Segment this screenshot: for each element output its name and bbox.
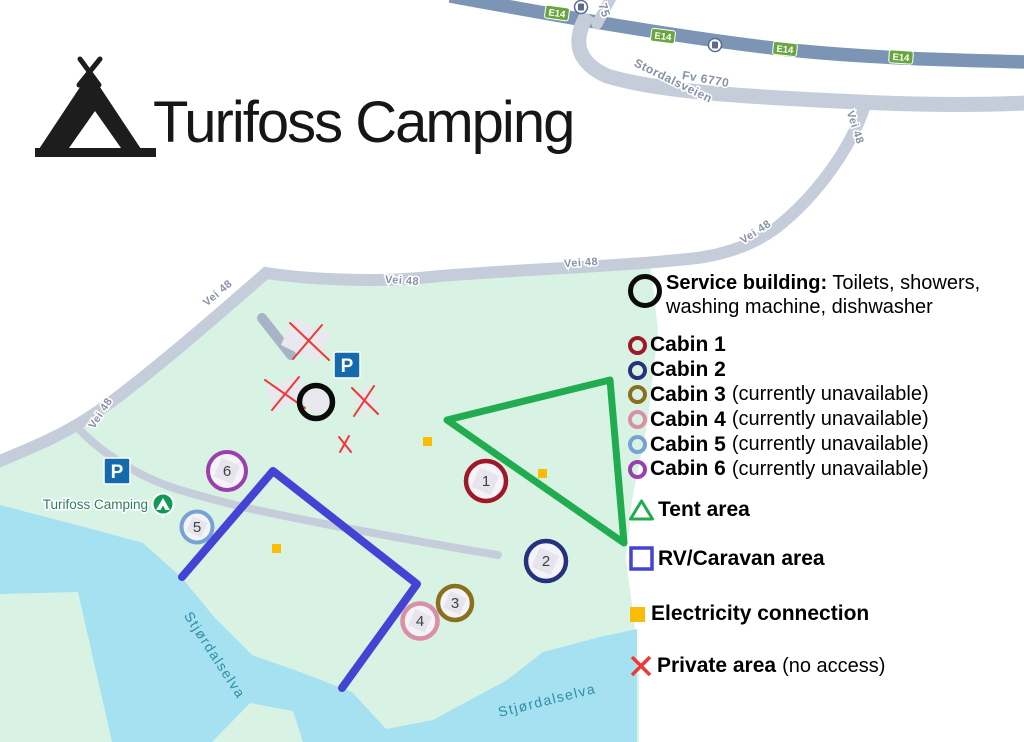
cabin-number: 6 xyxy=(223,463,231,480)
rv-area-icon xyxy=(628,545,655,572)
cabin-ring-icon xyxy=(628,435,647,454)
legend-cabin-4: Cabin 4 (currently unavailable) xyxy=(628,407,929,432)
campsite-poi-label: Turifoss Camping xyxy=(43,497,148,512)
cabin-ring-icon xyxy=(628,410,647,429)
road-e14 xyxy=(450,0,1024,62)
cabin-label: Cabin 6 xyxy=(650,457,726,481)
private-x-icon xyxy=(628,653,654,679)
electricity-icon xyxy=(272,544,281,553)
campground-map-page: P P Turifoss Camping 1 2 xyxy=(0,0,1024,742)
route-badge-label: E14 xyxy=(776,44,795,57)
cabin-ring-icon xyxy=(628,460,647,479)
cabin-label: Cabin 4 xyxy=(650,408,726,432)
tent-area-icon xyxy=(628,498,655,522)
cabin-number: 3 xyxy=(451,595,459,612)
cabin-ring-icon xyxy=(628,361,647,380)
cabin-ring-icon xyxy=(628,336,647,355)
cabin-marker-5: 5 xyxy=(182,512,213,543)
cabin-note: (currently unavailable) xyxy=(732,383,929,406)
electricity-icon xyxy=(423,437,432,446)
service-building-text: Service building: Toilets, showers, wash… xyxy=(666,271,980,319)
map-legend: Service building: Toilets, showers, wash… xyxy=(620,265,1024,742)
cabin-label: Cabin 1 xyxy=(650,333,726,357)
legend-private-area: Private area (no access) xyxy=(628,653,885,679)
electricity-label: Electricity connection xyxy=(651,602,869,626)
cabin-number: 1 xyxy=(482,473,490,490)
bus-stop-icon xyxy=(709,39,722,52)
service-building-icon xyxy=(628,274,662,308)
legend-cabin-5: Cabin 5 (currently unavailable) xyxy=(628,432,929,457)
legend-cabin-1: Cabin 1 xyxy=(628,333,929,358)
parking-sign: P xyxy=(104,458,130,484)
cabin-note: (currently unavailable) xyxy=(732,408,929,431)
legend-electricity: Electricity connection xyxy=(628,602,869,626)
route-badge-label: E14 xyxy=(892,52,910,64)
legend-rv-area: RV/Caravan area xyxy=(628,545,825,572)
service-building-desc1: Toilets, showers, xyxy=(832,272,980,294)
service-building-desc2: washing machine, dishwasher xyxy=(666,296,933,318)
cabin-marker-2: 2 xyxy=(526,541,566,581)
electricity-icon xyxy=(538,469,547,478)
page-title: Turifoss Camping xyxy=(153,92,573,154)
cabin-label: Cabin 5 xyxy=(650,433,726,457)
cabin-number: 5 xyxy=(193,519,201,536)
legend-cabin-2: Cabin 2 xyxy=(628,358,929,383)
legend-tent-area: Tent area xyxy=(628,498,750,522)
cabin-marker-4: 4 xyxy=(403,604,438,639)
parking-letter: P xyxy=(341,356,354,377)
tent-logo-icon xyxy=(35,52,161,164)
bus-stop-icon xyxy=(575,1,588,14)
service-building-title: Service building: xyxy=(666,272,827,294)
cabin-marker-6: 6 xyxy=(208,452,246,490)
tent-area-label: Tent area xyxy=(658,498,750,522)
parking-letter: P xyxy=(111,462,124,483)
legend-service-building: Service building: Toilets, showers, wash… xyxy=(628,271,980,319)
road-label-vei48: Vei 48 xyxy=(564,256,599,270)
private-area-note: (no access) xyxy=(782,655,885,678)
private-area-label: Private area xyxy=(657,654,776,678)
cabin-number: 4 xyxy=(416,613,424,630)
cabin-note: (currently unavailable) xyxy=(732,458,929,481)
cabin-marker-1: 1 xyxy=(466,461,506,501)
legend-cabin-list: Cabin 1 Cabin 2 Cabin 3 (currently unava… xyxy=(628,333,929,482)
road-label-vei48: Vei 48 xyxy=(385,274,420,288)
cabin-ring-icon xyxy=(628,385,647,404)
cabin-label: Cabin 2 xyxy=(650,358,726,382)
cabin-number: 2 xyxy=(542,553,550,570)
cabin-label: Cabin 3 xyxy=(650,383,726,407)
legend-cabin-6: Cabin 6 (currently unavailable) xyxy=(628,457,929,482)
parking-sign: P xyxy=(334,352,360,378)
legend-cabin-3: Cabin 3 (currently unavailable) xyxy=(628,383,929,408)
electricity-icon xyxy=(628,605,648,623)
cabin-note: (currently unavailable) xyxy=(732,433,929,456)
rv-area-label: RV/Caravan area xyxy=(658,547,825,571)
cabin-marker-3: 3 xyxy=(438,586,472,620)
route-badge-label: E14 xyxy=(654,31,673,44)
